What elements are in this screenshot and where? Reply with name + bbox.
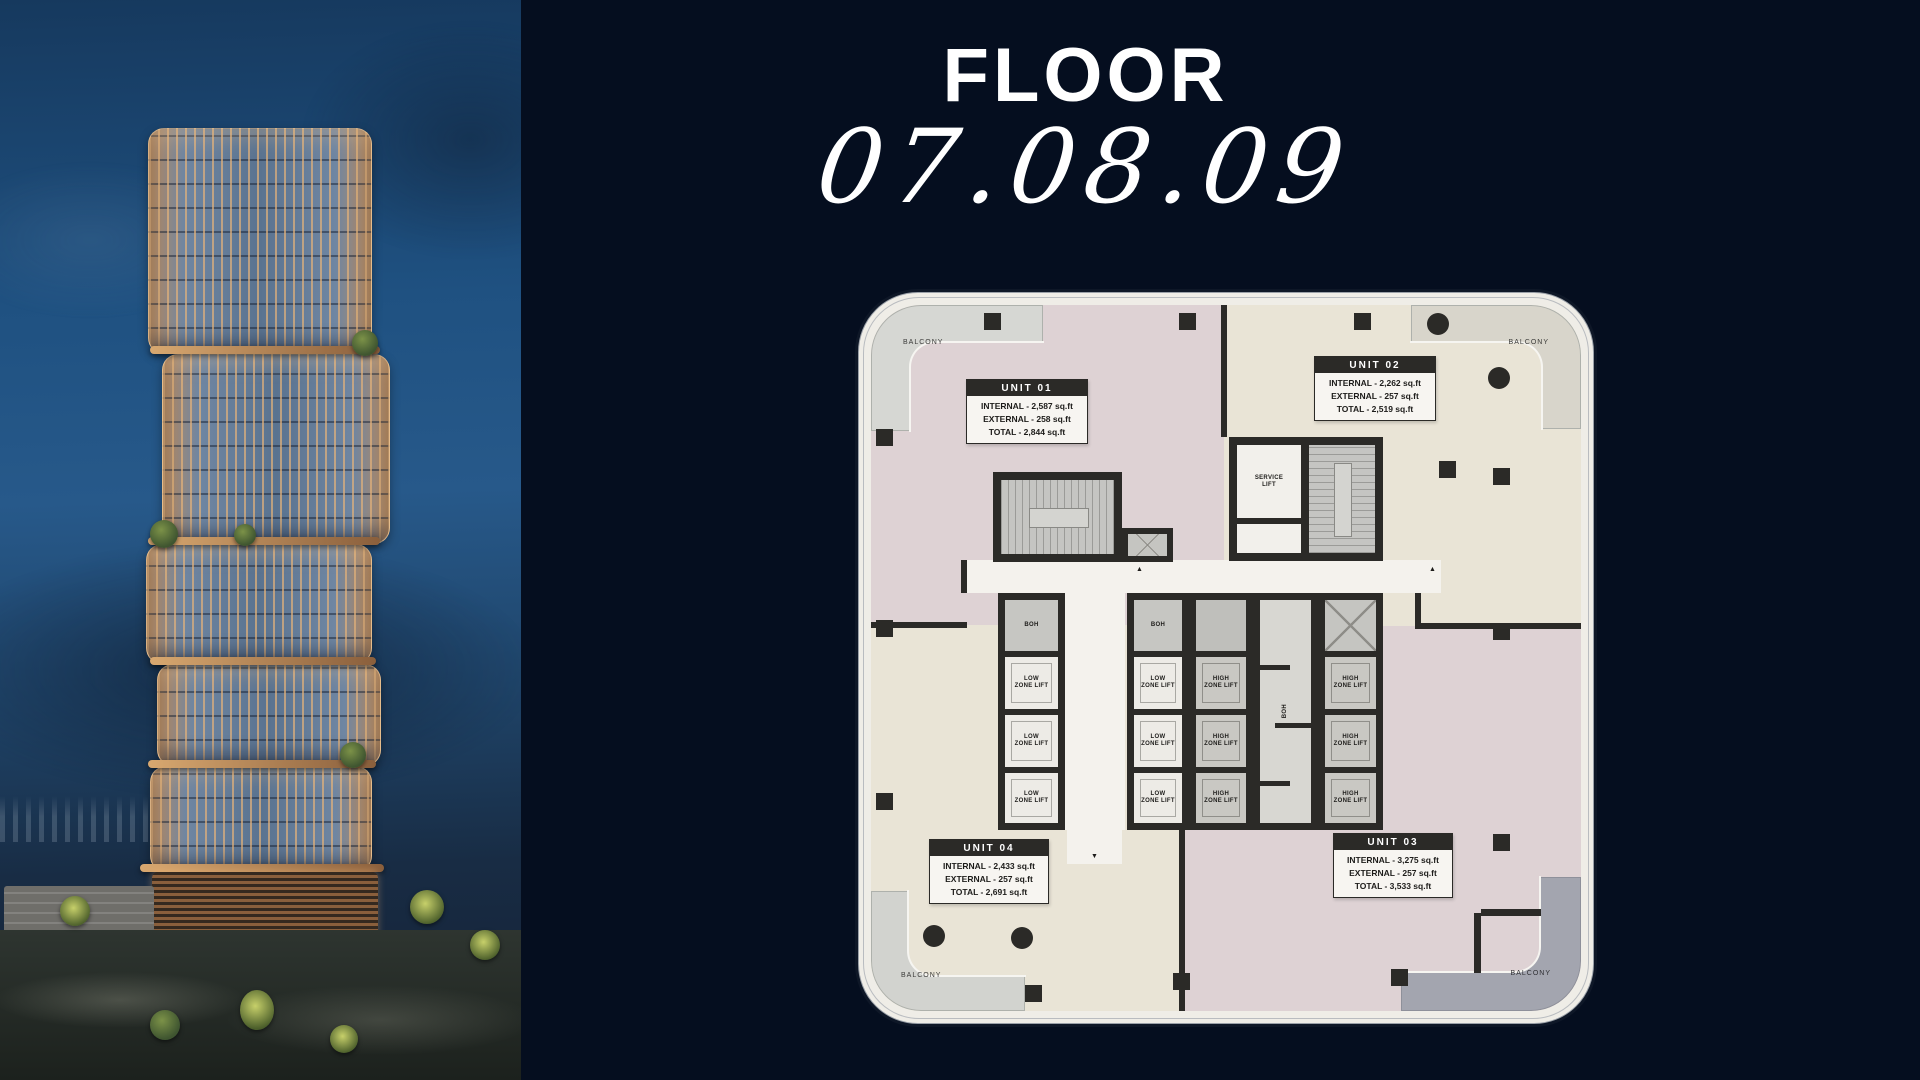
lift-label: LOW ZONE LIFT [1015,676,1049,690]
boh-partition [1260,781,1290,786]
high-zone-lift: HIGH ZONE LIFT [1196,715,1246,767]
low-zone-lift: LOW ZONE LIFT [1134,715,1182,767]
high-zone-lift: HIGH ZONE LIFT [1196,657,1246,709]
shaft [1196,600,1246,651]
boh-room: BOH [1005,600,1058,651]
unit-01-external: EXTERNAL - 258 sq.ft [971,413,1083,426]
boh-label: BOH [1282,704,1289,718]
unit-03-internal: INTERNAL - 3,275 sq.ft [1338,854,1448,867]
unit-01-total: TOTAL - 2,844 sq.ft [971,426,1083,439]
building-render-photo [0,0,521,1080]
lift-label: LOW ZONE LIFT [1015,734,1049,748]
column-round [1427,313,1449,335]
column [1391,969,1408,986]
boh-partition [1275,723,1311,728]
low-zone-lift: LOW ZONE LIFT [1005,657,1058,709]
unit-02-internal: INTERNAL - 2,262 sq.ft [1319,377,1431,390]
boh-label: BOH [1024,622,1038,629]
direction-arrow: ▲ [1429,566,1436,573]
boh-room: BOH [1134,600,1182,651]
lift-label: HIGH ZONE LIFT [1333,791,1369,805]
lift-label: LOW ZONE LIFT [1141,791,1175,805]
balcony-label: BALCONY [1511,970,1551,977]
floor-plan-inner: BALCONY BALCONY BALCONY BALCONY ▲ ▲ ▼ SE… [871,305,1581,1011]
column [1179,313,1196,330]
service-lift: SERVICE LIFT [1237,445,1301,518]
low-zone-lift: LOW ZONE LIFT [1134,657,1182,709]
unit-02-total: TOTAL - 2,519 sq.ft [1319,403,1431,416]
column [876,620,893,637]
lift-label: LOW ZONE LIFT [1141,734,1175,748]
service-lift-label: SERVICE LIFT [1249,475,1289,489]
terrace-tree [150,520,178,548]
column [1025,985,1042,1002]
tree [60,896,90,926]
lift-label: HIGH ZONE LIFT [1203,791,1239,805]
unit-wall [1221,305,1227,437]
unit-04-title: UNIT 04 [930,840,1048,856]
direction-arrow: ▲ [1136,566,1143,573]
tower-block [148,128,372,354]
terrace [148,537,380,545]
floor-plan: BALCONY BALCONY BALCONY BALCONY ▲ ▲ ▼ SE… [858,292,1594,1024]
balcony-parapet-wall [1481,909,1541,916]
shaft [1325,600,1376,651]
terrace-tree [340,742,366,768]
column [1493,834,1510,851]
column [1439,461,1456,478]
unit-03-external: EXTERNAL - 257 sq.ft [1338,867,1448,880]
terrace [140,864,384,872]
unit-01-info-box: UNIT 01 INTERNAL - 2,587 sq.ft EXTERNAL … [966,379,1088,444]
terrace [150,346,380,354]
boh-corridor: BOH [1260,600,1311,823]
column [876,793,893,810]
boh-partition [1260,665,1290,670]
stair-landing [1029,508,1089,528]
unit-03-title: UNIT 03 [1334,834,1452,850]
central-lobby [1064,593,1125,830]
tower-block [146,544,372,664]
high-zone-lift: HIGH ZONE LIFT [1325,773,1376,823]
unit-04-info-box: UNIT 04 INTERNAL - 2,433 sq.ft EXTERNAL … [929,839,1049,904]
lift-label: HIGH ZONE LIFT [1203,734,1239,748]
tower-block [150,766,372,872]
balcony-label: BALCONY [1509,339,1549,346]
stair-annex-flight [1128,534,1167,556]
low-zone-lift: LOW ZONE LIFT [1005,715,1058,767]
balcony-parapet-wall [1474,913,1481,973]
column-round [1488,367,1510,389]
unit-01-internal: INTERNAL - 2,587 sq.ft [971,400,1083,413]
boh-label: BOH [1151,622,1165,629]
direction-arrow: ▼ [1091,853,1098,860]
high-zone-lift: HIGH ZONE LIFT [1325,657,1376,709]
page-title: FLOOR [521,32,1650,119]
unit-02-title: UNIT 02 [1315,357,1435,373]
column [1354,313,1371,330]
balcony-label: BALCONY [903,339,943,346]
lift-label: HIGH ZONE LIFT [1333,734,1369,748]
column [1493,623,1510,640]
column [876,429,893,446]
unit-04-internal: INTERNAL - 2,433 sq.ft [934,860,1044,873]
column-round [923,925,945,947]
unit-02-info-box: UNIT 02 INTERNAL - 2,262 sq.ft EXTERNAL … [1314,356,1436,421]
column [1173,973,1190,990]
column-round [1011,927,1033,949]
terrace-tree [234,524,256,546]
unit-03-info-box: UNIT 03 INTERNAL - 3,275 sq.ft EXTERNAL … [1333,833,1453,898]
lift-label: HIGH ZONE LIFT [1203,676,1239,690]
tree [470,930,500,960]
unit-04-external: EXTERNAL - 257 sq.ft [934,873,1044,886]
floor-numbers: 07.08.09 [513,108,1659,227]
tower-block [162,354,390,544]
unit-04-total: TOTAL - 2,691 sq.ft [934,886,1044,899]
tree [240,990,274,1030]
unit-01-title: UNIT 01 [967,380,1087,396]
lift-lobby-corridor [967,560,1441,593]
high-zone-lift: HIGH ZONE LIFT [1196,773,1246,823]
unit-02-external: EXTERNAL - 257 sq.ft [1319,390,1431,403]
service-vestibule [1237,524,1301,553]
terrace [150,657,376,665]
balcony-label: BALCONY [901,972,941,979]
column [1493,468,1510,485]
lift-label: LOW ZONE LIFT [1141,676,1175,690]
column [984,313,1001,330]
unit-03-total: TOTAL - 3,533 sq.ft [1338,880,1448,893]
low-zone-lift: LOW ZONE LIFT [1005,773,1058,823]
lift-label: LOW ZONE LIFT [1015,791,1049,805]
low-zone-lift: LOW ZONE LIFT [1134,773,1182,823]
tree [330,1025,358,1053]
lift-label: HIGH ZONE LIFT [1333,676,1369,690]
terrace-tree [352,330,378,356]
tree [150,1010,180,1040]
tree [410,890,444,924]
corridor-end-wall [961,560,967,593]
high-zone-lift: HIGH ZONE LIFT [1325,715,1376,767]
stair-rail [1334,463,1352,537]
unit-wall [1415,593,1421,629]
